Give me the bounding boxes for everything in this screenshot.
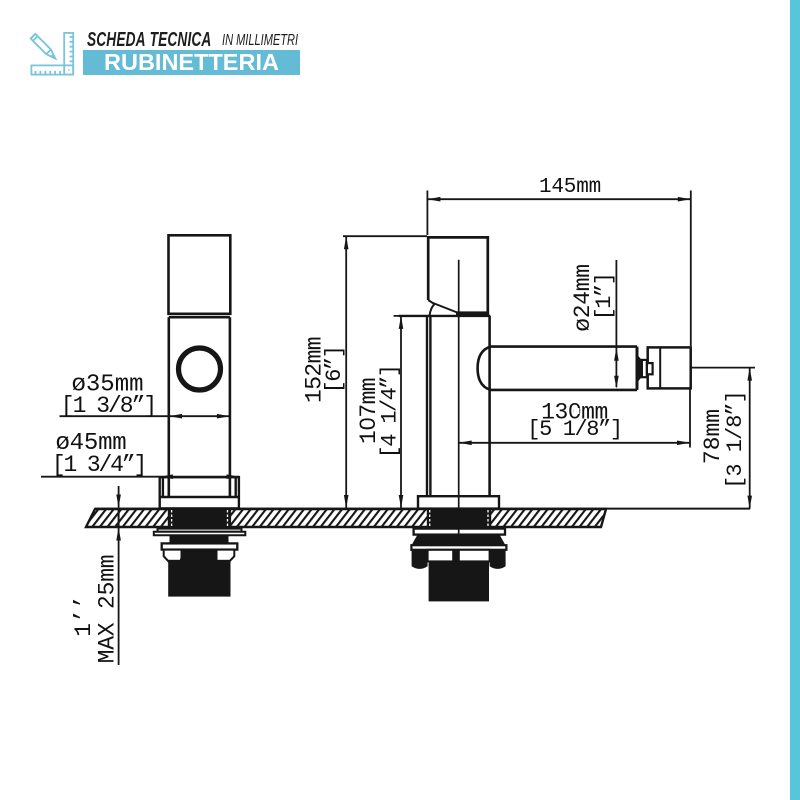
svg-text:1’’: 1’’: [71, 595, 97, 636]
svg-text:[1 3/4”]: [1 3/4”]: [52, 452, 145, 478]
svg-text:MAX 25mm: MAX 25mm: [95, 555, 121, 664]
svg-text:145mm: 145mm: [539, 176, 601, 199]
svg-text:[4 1/4”]: [4 1/4”]: [378, 366, 403, 459]
svg-text:[5 1/8”]: [5 1/8”]: [527, 417, 621, 442]
svg-text:[1 3/8”]: [1 3/8”]: [61, 393, 155, 419]
svg-text:[3 1/8”]: [3 1/8”]: [723, 391, 748, 489]
svg-text:[6”]: [6”]: [322, 347, 347, 394]
svg-text:[1”]: [1”]: [592, 274, 617, 321]
